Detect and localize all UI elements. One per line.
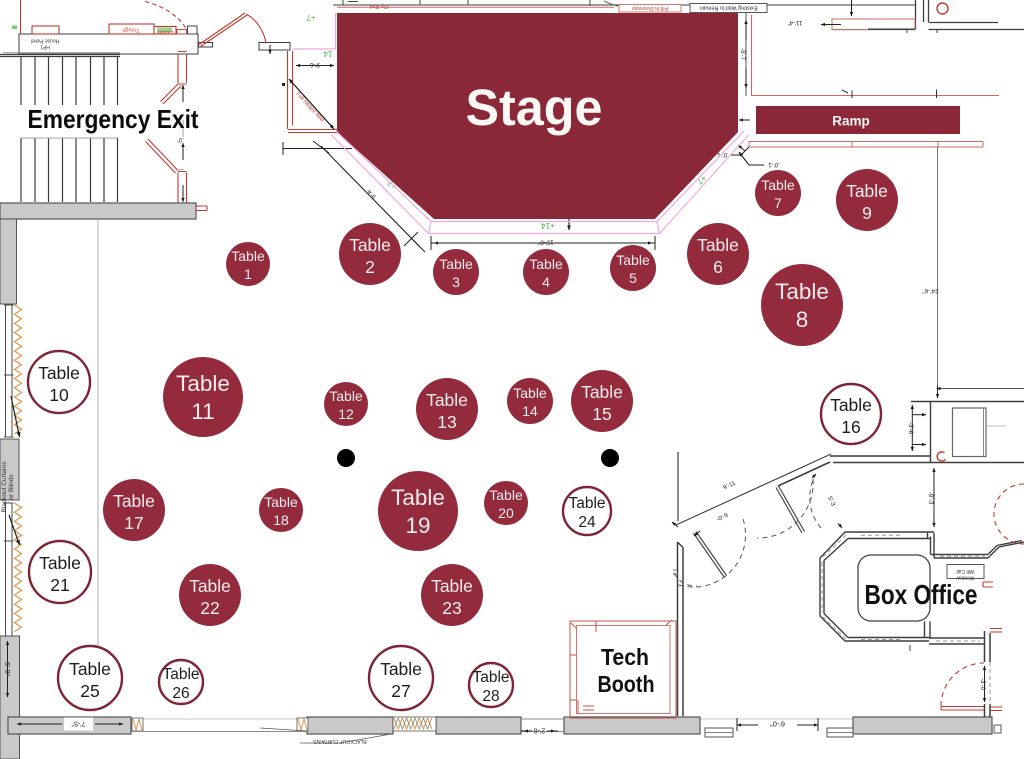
svg-text:Table: Table [189, 576, 231, 596]
svg-text:Table: Table [231, 248, 265, 264]
svg-text:Table: Table [349, 235, 391, 255]
svg-text:Table: Table [439, 256, 473, 272]
svg-text:28: 28 [482, 688, 499, 705]
svg-text:8: 8 [796, 307, 809, 332]
svg-text:Fly Rail: Fly Rail [370, 3, 388, 9]
svg-text:1: 1 [244, 266, 252, 282]
svg-text:+7: +7 [306, 13, 316, 22]
svg-text:Table: Table [489, 487, 523, 503]
svg-text:Table: Table [529, 256, 563, 272]
svg-text:11'-4": 11'-4" [788, 19, 803, 25]
svg-text:Table: Table [472, 669, 509, 686]
svg-text:11: 11 [191, 399, 214, 424]
svg-text:Box Office: Box Office [865, 579, 978, 610]
svg-text:.0'-1: .0'-1 [768, 161, 780, 167]
svg-text:26: 26 [172, 685, 189, 702]
svg-text:17: 17 [124, 513, 143, 533]
svg-text:9'-6: 9'-6 [309, 61, 319, 67]
svg-text:12: 12 [338, 406, 354, 422]
svg-text:Ramp: Ramp [832, 114, 870, 129]
svg-text:-3'-0: -3'-0 [979, 678, 985, 690]
svg-text:7: 7 [774, 195, 782, 211]
svg-text:-5'-7: -5'-7 [739, 48, 745, 60]
svg-text:Trough: Trough [122, 27, 139, 33]
svg-text:Table: Table [426, 390, 468, 410]
svg-text:2: 2 [365, 257, 375, 277]
svg-text:Table: Table [113, 491, 155, 511]
svg-text:Table: Table [616, 252, 650, 268]
svg-text:Tech: Tech [601, 644, 649, 670]
svg-text:Table: Table [581, 382, 623, 402]
svg-text:Table: Table [775, 279, 829, 304]
svg-text:+14: +14 [541, 221, 555, 230]
svg-text:-3'-6: -3'-6 [907, 422, 913, 434]
svg-text:5: 5 [629, 270, 637, 286]
svg-text:Existing Wall to Remain: Existing Wall to Remain [700, 5, 758, 11]
svg-text:4: 4 [542, 274, 550, 290]
svg-text:23: 23 [442, 598, 461, 618]
svg-text:Table: Table [391, 485, 445, 510]
svg-text:13: 13 [437, 412, 456, 432]
svg-text:Table: Table [846, 181, 888, 201]
svg-text:22: 22 [200, 598, 219, 618]
svg-text:24'-6": 24'-6" [922, 287, 939, 294]
svg-text:BLACKOUT CURTAINS: BLACKOUT CURTAINS [313, 738, 367, 744]
svg-text:9: 9 [862, 203, 872, 223]
svg-text:Table: Table [568, 495, 605, 512]
svg-text:Stage: Stage [466, 79, 603, 136]
svg-text:18: 18 [273, 512, 289, 528]
svg-text:Table: Table [176, 371, 230, 396]
svg-text:5'-0": 5'-0" [3, 662, 10, 676]
svg-text:House Panel: House Panel [31, 38, 60, 44]
svg-text:Table: Table [761, 177, 795, 193]
svg-text:--: -- [179, 166, 183, 172]
svg-text:Will Call: Will Call [956, 568, 974, 574]
svg-text:or Blinds: or Blinds [8, 474, 15, 500]
svg-text:Table: Table [830, 395, 872, 415]
svg-text:3: 3 [452, 274, 460, 290]
svg-text:7'-5": 7'-5" [71, 720, 85, 727]
svg-text:15: 15 [592, 404, 611, 424]
svg-text:-9'-3: -9'-3 [927, 492, 934, 505]
svg-text:21: 21 [50, 575, 69, 595]
svg-text:Table: Table [513, 385, 547, 401]
svg-text:16: 16 [841, 417, 860, 437]
svg-text:Table: Table [162, 666, 199, 683]
svg-text:10: 10 [49, 385, 69, 405]
svg-text:Ladder: Ladder [156, 29, 173, 35]
svg-text:19: 19 [405, 513, 430, 538]
svg-text:Table: Table [38, 363, 80, 383]
svg-text:Fill in Doorway: Fill in Doorway [632, 5, 668, 11]
svg-text:14: 14 [522, 403, 538, 419]
svg-text:Blackout Curtains: Blackout Curtains [1, 461, 8, 513]
svg-text:HP1: HP1 [40, 44, 50, 50]
svg-text:15'-0": 15'-0" [538, 239, 553, 245]
svg-text:27: 27 [391, 681, 410, 701]
svg-text:14: 14 [323, 49, 332, 58]
svg-text:20: 20 [498, 505, 514, 521]
svg-text:Emergency Exit: Emergency Exit [28, 104, 199, 134]
svg-text:2'-8: 2'-8 [534, 727, 546, 734]
svg-text:Table: Table [69, 659, 111, 679]
svg-text:6'-0": 6'-0" [770, 720, 785, 729]
svg-text:.0': .0' [178, 136, 184, 142]
svg-text:Table: Table [329, 388, 363, 404]
svg-text:Booth: Booth [598, 671, 655, 697]
svg-text:Table: Table [264, 494, 298, 510]
svg-text:Table: Table [431, 576, 473, 596]
svg-text:Table: Table [39, 553, 81, 573]
svg-text:24: 24 [578, 514, 596, 531]
svg-text:6: 6 [713, 257, 723, 277]
svg-text:Table: Table [697, 235, 739, 255]
svg-text:Table: Table [380, 659, 422, 679]
svg-text:25: 25 [80, 681, 99, 701]
